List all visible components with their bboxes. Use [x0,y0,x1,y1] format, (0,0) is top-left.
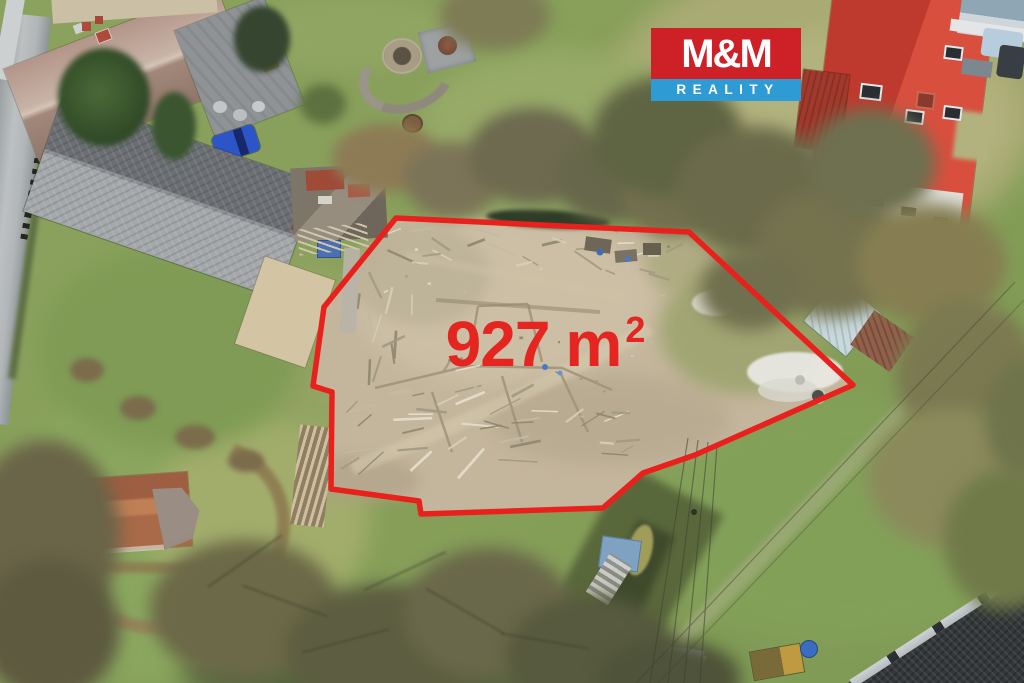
agency-logo-name: M&M [651,28,801,79]
plot-area-label: 927m2 [415,312,675,376]
agency-watermark: M&M REALITY [651,28,801,101]
area-value: 927 [446,308,550,380]
power-lines [636,282,1024,683]
area-unit: m [565,308,621,380]
aerial-photo-canvas: M&M REALITY 927m2 [0,0,1024,683]
utility-pole [691,509,697,515]
area-exponent: 2 [625,309,644,350]
agency-logo-subtitle: REALITY [651,79,801,101]
